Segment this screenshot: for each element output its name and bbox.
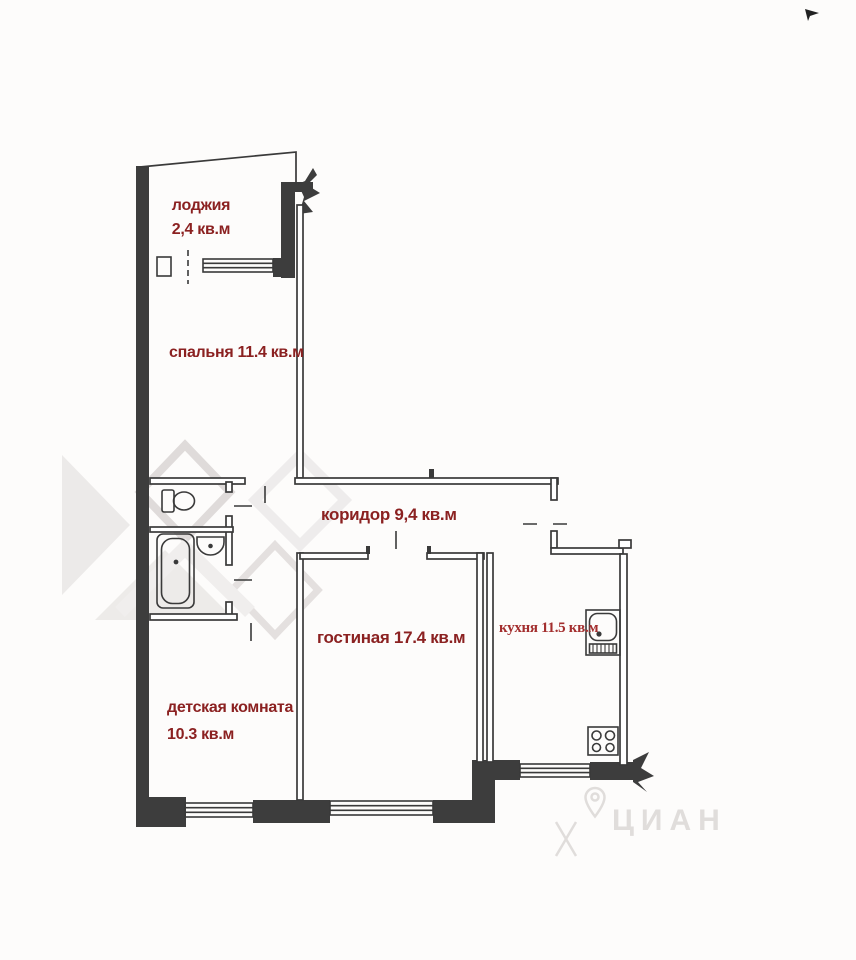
watermark-logo xyxy=(556,788,605,856)
stove-icon xyxy=(588,727,618,755)
room-label-corridor: коридор 9,4 кв.м xyxy=(321,505,457,525)
loggia-roof-line xyxy=(140,152,296,184)
room-label-children-room: детская комната 10.3 кв.м xyxy=(167,694,293,748)
room-label-children-area: 10.3 кв.м xyxy=(167,721,293,748)
watermark-text: ЦИАН xyxy=(612,804,727,838)
room-label-loggia-name: лоджия xyxy=(156,194,246,218)
loggia-window xyxy=(157,257,273,276)
living-room-window xyxy=(330,801,433,815)
room-label-children-name: детская комната xyxy=(167,694,293,721)
kitchen-window xyxy=(520,764,590,777)
toilet-icon xyxy=(162,490,195,512)
break-symbol-bottom xyxy=(633,752,654,792)
floor-plan: лоджия 2,4 кв.м спальня 11.4 кв.м коридо… xyxy=(0,0,856,960)
loggia-radiator xyxy=(157,257,171,276)
floor-plan-drawing xyxy=(0,0,856,960)
bath-sink-icon xyxy=(197,537,224,555)
children-room-window xyxy=(185,803,253,817)
door-marks xyxy=(188,250,567,641)
corner-artifact xyxy=(805,9,819,21)
room-label-kitchen: кухня 11.5 кв.м xyxy=(499,620,598,637)
room-label-living-room: гостиная 17.4 кв.м xyxy=(317,628,465,648)
room-label-loggia: лоджия 2,4 кв.м xyxy=(156,194,246,242)
room-label-bedroom: спальня 11.4 кв.м xyxy=(169,344,304,362)
room-label-loggia-area: 2,4 кв.м xyxy=(156,218,246,242)
